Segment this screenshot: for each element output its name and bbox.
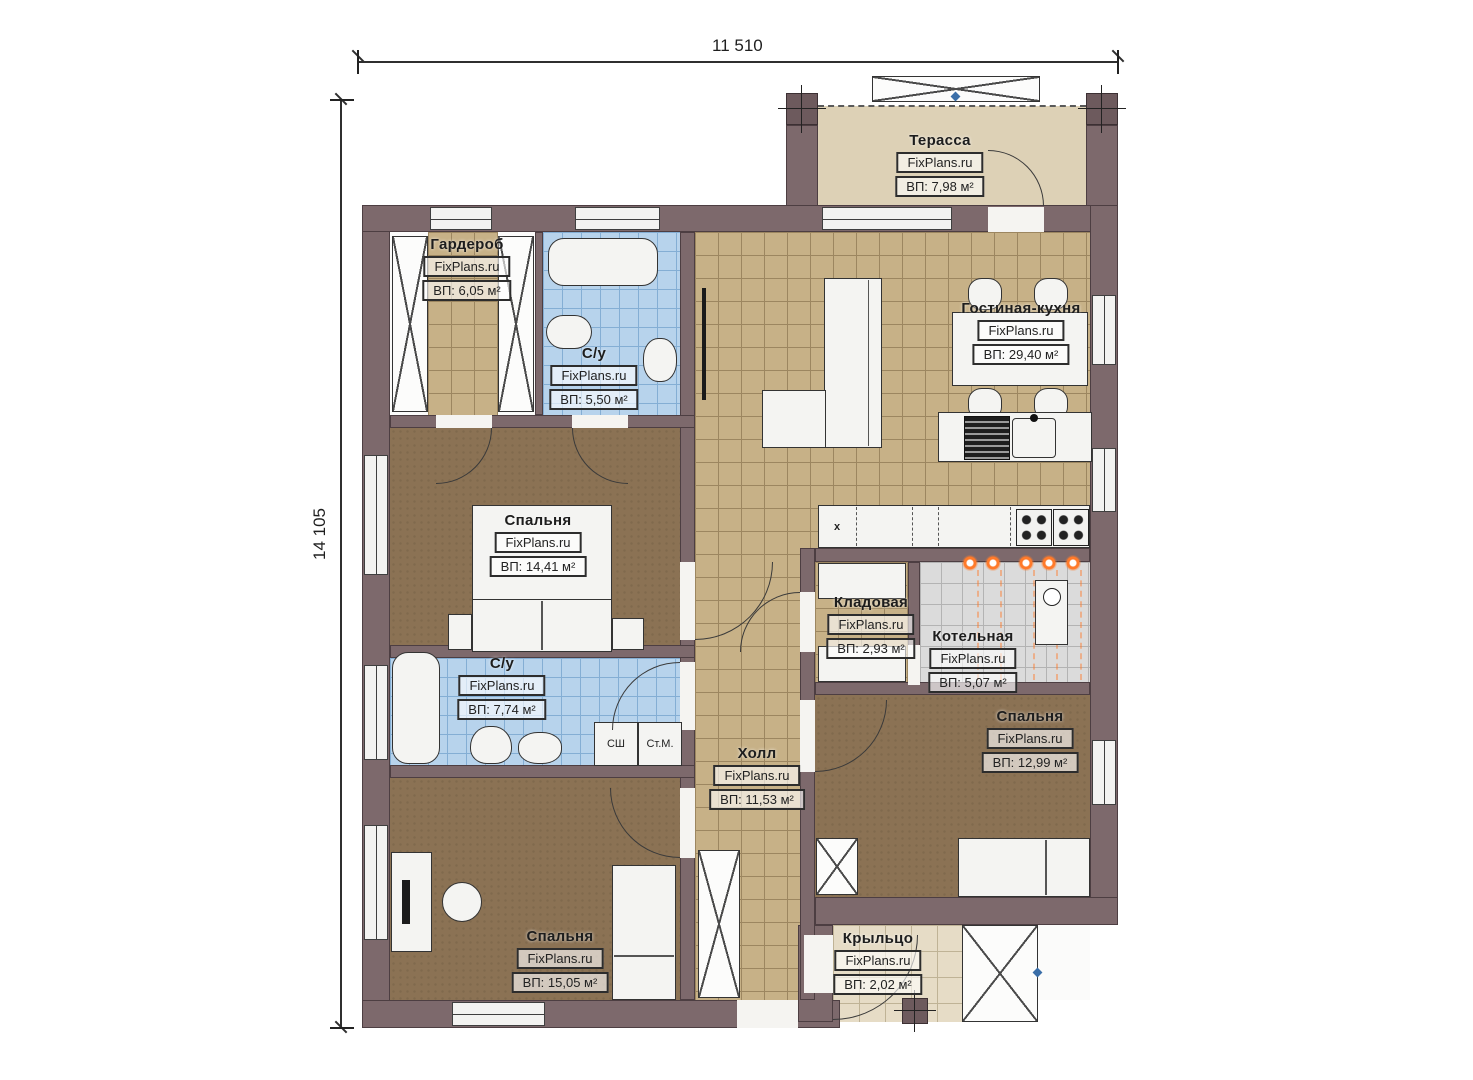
room-area: ВП: 5,50 м² [549, 389, 638, 410]
window [1092, 295, 1116, 365]
bed-linen-line [1045, 840, 1047, 895]
watermark: FixPlans.ru [834, 950, 921, 971]
room-label-bath2: С/у FixPlans.ru ВП: 7,74 м² [457, 655, 546, 720]
room-label-hall: Холл FixPlans.ru ВП: 11,53 м² [709, 745, 805, 810]
bed-linen-line [614, 955, 674, 957]
door-opening [988, 207, 1044, 232]
boiler-dial [1043, 588, 1061, 606]
counter-divider [1010, 507, 1011, 546]
window [575, 207, 660, 230]
terrace-side-wall [1086, 125, 1118, 207]
door-opening [680, 662, 695, 730]
extension-line [330, 1027, 354, 1029]
heating-valve-icon [962, 555, 978, 571]
single-bed [958, 838, 1090, 897]
room-label-porch: Крыльцо FixPlans.ru ВП: 2,02 м² [833, 930, 922, 995]
door-opening [680, 562, 695, 640]
heating-valve-icon [985, 555, 1001, 571]
room-area: ВП: 2,93 м² [826, 638, 915, 659]
sofa-long-section [824, 278, 882, 448]
sink [518, 732, 562, 764]
window [822, 207, 952, 230]
hall-closet [698, 850, 740, 998]
single-bed [612, 865, 676, 1000]
column-axis [894, 1010, 936, 1011]
bathtub [548, 238, 658, 286]
stove-burners [1016, 509, 1052, 546]
room-name: Кладовая [826, 594, 915, 611]
watermark: FixPlans.ru [896, 152, 983, 173]
room-area: ВП: 5,07 м² [928, 672, 1017, 693]
room-area: ВП: 15,05 м² [512, 972, 609, 993]
window [364, 455, 388, 575]
counter-divider [938, 507, 939, 546]
room-area: ВП: 6,05 м² [422, 280, 511, 301]
heating-pipe [1080, 570, 1082, 680]
watermark: FixPlans.ru [929, 648, 1016, 669]
sink [643, 338, 677, 382]
door-opening [680, 788, 695, 858]
room-name: Спальня [490, 512, 587, 529]
room-label-bath1: С/у FixPlans.ru ВП: 5,50 м² [549, 345, 638, 410]
stove-burners [1053, 509, 1089, 546]
extension-line [1117, 50, 1119, 74]
door-opening [572, 415, 628, 428]
room-area: ВП: 2,02 м² [833, 974, 922, 995]
window [364, 825, 388, 940]
room-label-bedroom3: Спальня FixPlans.ru ВП: 15,05 м² [512, 928, 609, 993]
interior-wall [390, 765, 695, 778]
room-name: Котельная [928, 628, 1017, 645]
tv [702, 288, 706, 400]
toilet [546, 315, 592, 349]
watermark: FixPlans.ru [986, 728, 1073, 749]
room-name: Спальня [512, 928, 609, 945]
closet [816, 838, 858, 895]
watermark: FixPlans.ru [516, 948, 603, 969]
room-area: ВП: 29,40 м² [973, 344, 1070, 365]
porch-steps [962, 925, 1038, 1022]
window [452, 1002, 545, 1026]
room-area: ВП: 7,98 м² [895, 176, 984, 197]
interior-wall [535, 232, 543, 415]
nightstand [448, 614, 472, 650]
counter-divider [912, 507, 913, 546]
room-label-boiler: Котельная FixPlans.ru ВП: 5,07 м² [928, 628, 1017, 693]
window [1092, 740, 1116, 805]
heating-valve-icon [1041, 555, 1057, 571]
room-label-living: Гостиная-кухня FixPlans.ru ВП: 29,40 м² [961, 300, 1080, 365]
room-name: Терасса [895, 132, 984, 149]
faucet-icon [1030, 414, 1038, 422]
room-area: ВП: 11,53 м² [709, 789, 805, 810]
desk [391, 852, 432, 952]
room-name: С/у [549, 345, 638, 362]
watermark: FixPlans.ru [423, 256, 510, 277]
column-axis [914, 990, 915, 1032]
dimension-line-top [358, 61, 1118, 63]
watermark: FixPlans.ru [458, 675, 545, 696]
room-name: Гостиная-кухня [961, 300, 1080, 317]
room-name: С/у [457, 655, 546, 672]
nightstand [612, 618, 644, 650]
heating-valve-icon [1018, 555, 1034, 571]
watermark: FixPlans.ru [827, 614, 914, 635]
pillar-axis [801, 85, 802, 133]
window [1092, 448, 1116, 512]
dimension-line-left [340, 100, 342, 1028]
sofa-short-section [762, 390, 826, 448]
door-opening [800, 592, 815, 652]
room-label-bedroom2: Спальня FixPlans.ru ВП: 12,99 м² [982, 708, 1079, 773]
room-area: ВП: 14,41 м² [490, 556, 587, 577]
door-opening [436, 415, 492, 428]
sofa-back-line [868, 280, 869, 446]
room-label-pantry: Кладовая FixPlans.ru ВП: 2,93 м² [826, 594, 915, 659]
room-label-wardrobe: Гардероб FixPlans.ru ВП: 6,05 м² [422, 236, 511, 301]
extension-line [357, 50, 359, 74]
bedroom2-bottom-wall [815, 897, 1118, 925]
terrace-side-wall [786, 125, 818, 207]
room-name: Гардероб [422, 236, 511, 253]
door-opening [804, 935, 833, 993]
bed-center-line [541, 601, 543, 650]
room-name: Спальня [982, 708, 1079, 725]
porch-column [902, 998, 928, 1024]
room-name: Крыльцо [833, 930, 922, 947]
counter-divider [856, 507, 857, 546]
watermark: FixPlans.ru [977, 320, 1064, 341]
floor-plan: 11 510 14 105 [0, 0, 1473, 1080]
watermark: FixPlans.ru [494, 532, 581, 553]
dishwasher [964, 416, 1010, 460]
pillar-axis [1078, 108, 1126, 109]
pillar-axis [778, 108, 826, 109]
terrace-pillar [1086, 93, 1118, 125]
watermark: FixPlans.ru [550, 365, 637, 386]
pillar-axis [1101, 85, 1102, 133]
entry-door-opening [737, 1000, 798, 1028]
dimension-width: 11 510 [712, 36, 763, 56]
window [430, 207, 492, 230]
kitchen-sink [1012, 418, 1056, 458]
room-label-bedroom1: Спальня FixPlans.ru ВП: 14,41 м² [490, 512, 587, 577]
terrace-open-edge [818, 105, 1086, 107]
sink-cabinet-mark: x [818, 505, 856, 548]
bathtub [392, 652, 440, 764]
room-area: ВП: 7,74 м² [457, 699, 546, 720]
computer-icon [402, 880, 410, 924]
room-area: ВП: 12,99 м² [982, 752, 1079, 773]
heating-valve-icon [1065, 555, 1081, 571]
watermark: FixPlans.ru [713, 765, 800, 786]
room-label-terrace: Терасса FixPlans.ru ВП: 7,98 м² [895, 132, 984, 197]
room-name: Холл [709, 745, 805, 762]
extension-line [330, 99, 354, 101]
office-chair [442, 882, 482, 922]
dimension-height: 14 105 [310, 508, 330, 560]
toilet [470, 726, 512, 764]
window [364, 665, 388, 760]
terrace-pillar [786, 93, 818, 125]
